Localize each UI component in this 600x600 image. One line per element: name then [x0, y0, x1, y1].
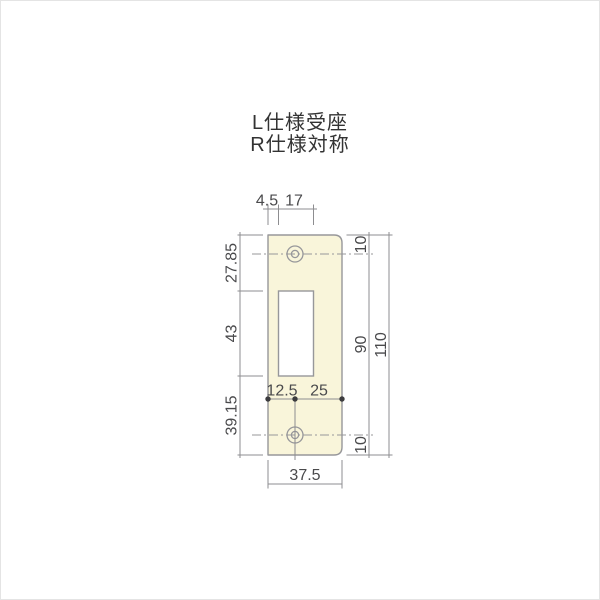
- dim-label-top-to-cutout-top: 27.85: [224, 243, 241, 283]
- dim-label-top-to-hole: 10: [353, 236, 370, 254]
- dim-label-overall-width: 37.5: [289, 467, 320, 484]
- dim-label-left-to-hole-center: 12.5: [266, 383, 297, 400]
- left-dimension-lines: [238, 232, 264, 458]
- dim-label-overall-height: 110: [373, 332, 390, 358]
- screenshot-canvas: L仕様受座 R仕様対称: [0, 0, 600, 600]
- dim-label-hole-to-bottom: 10: [353, 436, 370, 454]
- dim-label-cutout-height: 43: [224, 325, 241, 343]
- dim-label-hole-to-hole: 90: [353, 336, 370, 354]
- dim-label-edge-to-cutout: 4.5: [256, 193, 278, 210]
- dim-label-cutout-bottom-to-bottom: 39.15: [224, 395, 241, 435]
- dim-label-hole-center-to-right: 25: [310, 383, 328, 400]
- latch-cutout: [279, 291, 314, 376]
- dim-label-cutout-width: 17: [285, 193, 303, 210]
- technical-drawing: 4.5 17 12.5 25 37.5 27.85 43 39.15 10 90…: [1, 1, 600, 600]
